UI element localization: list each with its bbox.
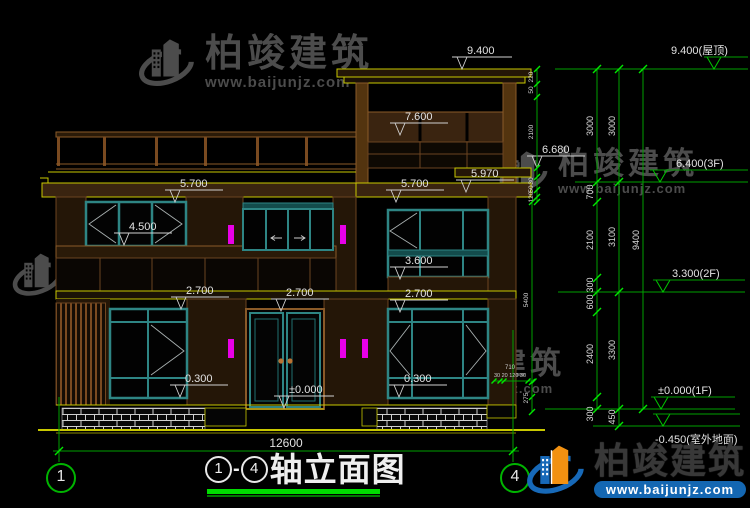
slat-screen	[56, 303, 106, 405]
elevation-label: ±0.000	[289, 384, 323, 396]
door-handle	[287, 358, 292, 363]
dim-chain-label: 3000	[585, 116, 595, 136]
tiny-dim-label: 30 20 120 30	[494, 373, 526, 379]
lamp	[362, 339, 368, 358]
lamp	[340, 225, 346, 244]
title-axis-bubble-end: 4	[241, 456, 268, 483]
title-underline-shadow	[207, 495, 380, 497]
level-marker-triangle	[656, 280, 670, 292]
dim-chain-label: 700	[585, 184, 595, 199]
elevation-label: 5.700	[180, 178, 208, 190]
footer-brand-name: 柏竣建筑	[594, 443, 746, 479]
dim-chain-label: 3000	[607, 116, 617, 136]
lamp	[340, 339, 346, 358]
elevation-label: 0.300	[404, 373, 432, 385]
door-handle	[278, 358, 283, 363]
level-marker-triangle	[656, 414, 670, 426]
elevation-label: 9.400	[467, 45, 495, 57]
elevation-label: 3.600	[405, 255, 433, 267]
elevation-label: 7.600	[405, 111, 433, 123]
second-floor	[56, 197, 516, 299]
level-label: 3.300(2F)	[672, 268, 720, 280]
sliding-door-2f-center	[243, 203, 333, 250]
elevation-label: 2.700	[405, 288, 433, 300]
dim-chain-label: 5400	[523, 292, 530, 307]
window-2f-right	[388, 210, 488, 291]
axis-bubble-1: 1	[46, 463, 76, 493]
elevation-label: 0.300	[185, 373, 213, 385]
elevation-label: 4.500	[129, 221, 157, 233]
building-facade	[38, 69, 545, 462]
level-marker-triangle	[654, 397, 668, 409]
elevation-label: 6.680	[542, 144, 570, 156]
title-text: 轴立面图	[270, 453, 406, 486]
elevation-label: 5.970	[471, 168, 499, 180]
elevation-label: 5.700	[401, 178, 429, 190]
cad-elevation-sheet: 柏竣建筑 www.baijunjz.com 柏竣建筑 www.baijunjz.…	[0, 0, 750, 508]
overall-dim-label: 12600	[269, 436, 303, 450]
dim-chain-label: 2100	[585, 230, 595, 250]
footer-brand-text: 柏竣建筑 www.baijunjz.com	[594, 443, 746, 498]
dim-chain-label: 275	[523, 392, 530, 403]
dim-chain-label: 9400	[631, 230, 641, 250]
brick-plinth	[62, 408, 205, 430]
dim-chain-label: 2100	[528, 124, 535, 139]
dim-chain-label: 50	[528, 185, 535, 193]
dim-chain-label: 50	[528, 86, 535, 94]
tiny-dim-label: 710	[505, 365, 516, 371]
baijun-logo-color-icon	[524, 440, 588, 500]
dim-chain-label: 3300	[607, 340, 617, 360]
elevation-label: 2.700	[186, 285, 214, 297]
level-label: ±0.000(1F)	[658, 385, 712, 397]
brick-plinth	[377, 408, 487, 430]
roof-penthouse	[337, 69, 531, 197]
roof-railing	[48, 132, 356, 172]
elevation-drawing: 9.4007.6006.6805.9705.7005.7004.5003.600…	[0, 0, 750, 508]
dim-chain-label: 300	[585, 277, 595, 292]
dim-chain-label: 450	[607, 409, 617, 424]
dim-chain-label: 2400	[585, 344, 595, 364]
title-underline	[207, 489, 380, 494]
title-axis-bubble-start: 1	[205, 456, 232, 483]
footer-brand-logo: 柏竣建筑 www.baijunjz.com	[524, 440, 746, 500]
level-label: 6.400(3F)	[676, 158, 724, 170]
dim-chain-label: 300	[585, 406, 595, 421]
lamp	[228, 225, 234, 244]
level-marker-triangle	[653, 170, 667, 182]
dim-chain-label: 600	[585, 294, 595, 309]
elevation-marker-triangle	[457, 57, 467, 69]
drawing-title: 1 - 4 轴立面图	[205, 453, 406, 486]
dim-chain-label: 220	[528, 71, 535, 82]
title-axis-separator: -	[233, 458, 240, 481]
dim-chain-label: 3100	[607, 227, 617, 247]
lamp	[228, 339, 234, 358]
elevation-label: 2.700	[286, 287, 314, 299]
footer-brand-url: www.baijunjz.com	[594, 481, 746, 498]
level-marker-triangle	[707, 57, 721, 69]
dim-chain-label: 30	[528, 177, 535, 185]
level-label: 9.400(屋顶)	[671, 44, 728, 57]
